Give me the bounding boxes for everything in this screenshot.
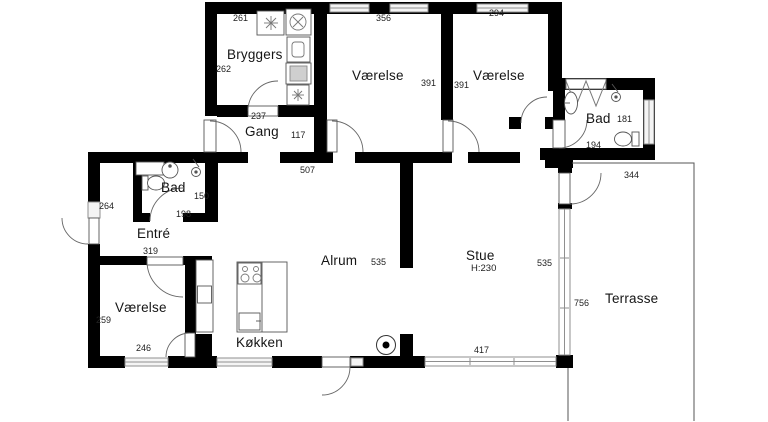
room-label-bad-ne: Bad bbox=[586, 111, 611, 126]
wardrobe bbox=[196, 260, 213, 332]
dim-stue-window-south: 417 bbox=[474, 345, 489, 355]
dim-vaerelse-ne-left: 391 bbox=[454, 80, 469, 90]
room-label-vaerelse-sw: Værelse bbox=[115, 300, 167, 315]
dim-vaerelse-ne-top: 294 bbox=[489, 8, 504, 18]
room-label-vaerelse-ne: Værelse bbox=[473, 68, 525, 83]
dim-bryggers-top: 261 bbox=[233, 13, 248, 23]
room-label-stue: Stue bbox=[466, 248, 495, 263]
dim-bryggers-bottom: 237 bbox=[251, 111, 266, 121]
room-label-terrasse: Terrasse bbox=[605, 291, 658, 306]
ceiling-height-note: H:230 bbox=[471, 263, 496, 274]
room-label-koekken: Køkken bbox=[236, 335, 283, 350]
dim-vaerelse-nw-right: 391 bbox=[421, 78, 436, 88]
dim-terrasse-top: 344 bbox=[624, 170, 639, 180]
wood-stove-icon bbox=[377, 336, 396, 355]
room-label-bad-w: Bad bbox=[161, 180, 186, 195]
dim-terrasse-left: 756 bbox=[574, 298, 589, 308]
dim-stue-width: 535 bbox=[537, 258, 552, 268]
floor-plan-drawing bbox=[0, 0, 768, 422]
dim-entre-bottom: 319 bbox=[143, 246, 158, 256]
dim-gang-south: 507 bbox=[300, 165, 315, 175]
dim-bad-ne-right: 181 bbox=[617, 114, 632, 124]
dim-vaerelse-sw-left: 259 bbox=[96, 315, 111, 325]
room-label-entre: Entré bbox=[137, 226, 170, 241]
room-label-gang: Gang bbox=[245, 124, 279, 139]
kitchen-island bbox=[237, 262, 287, 332]
worktop-sink-icon bbox=[286, 63, 311, 84]
room-label-alrum: Alrum bbox=[321, 253, 357, 268]
dim-bad-w-bottom: 198 bbox=[176, 209, 191, 219]
wall-basin-icon bbox=[565, 92, 578, 114]
freezer-icon bbox=[257, 11, 284, 35]
dryer-icon bbox=[287, 85, 309, 105]
laundry-sink-icon bbox=[287, 37, 310, 62]
dim-vaerelse-sw-bottom: 246 bbox=[136, 343, 151, 353]
dim-vaerelse-nw-top: 356 bbox=[376, 13, 391, 23]
dim-entre-left: 264 bbox=[99, 201, 114, 211]
floor-plan: Bryggers Værelse Værelse Bad Gang Bad En… bbox=[0, 0, 768, 422]
dim-bad-ne-bottom: 194 bbox=[586, 140, 601, 150]
dim-bryggers-left: 262 bbox=[216, 64, 231, 74]
dim-gang-width: 117 bbox=[291, 130, 305, 140]
toilet-icon bbox=[615, 132, 640, 146]
glazed-walls bbox=[425, 209, 570, 366]
dim-bad-w-right: 150 bbox=[194, 191, 209, 201]
room-label-bryggers: Bryggers bbox=[227, 47, 283, 62]
dim-alrum-width: 535 bbox=[371, 257, 386, 267]
kitchen-sink-icon bbox=[239, 313, 260, 330]
room-label-vaerelse-nw: Værelse bbox=[352, 68, 404, 83]
washing-machine-icon bbox=[286, 9, 311, 35]
